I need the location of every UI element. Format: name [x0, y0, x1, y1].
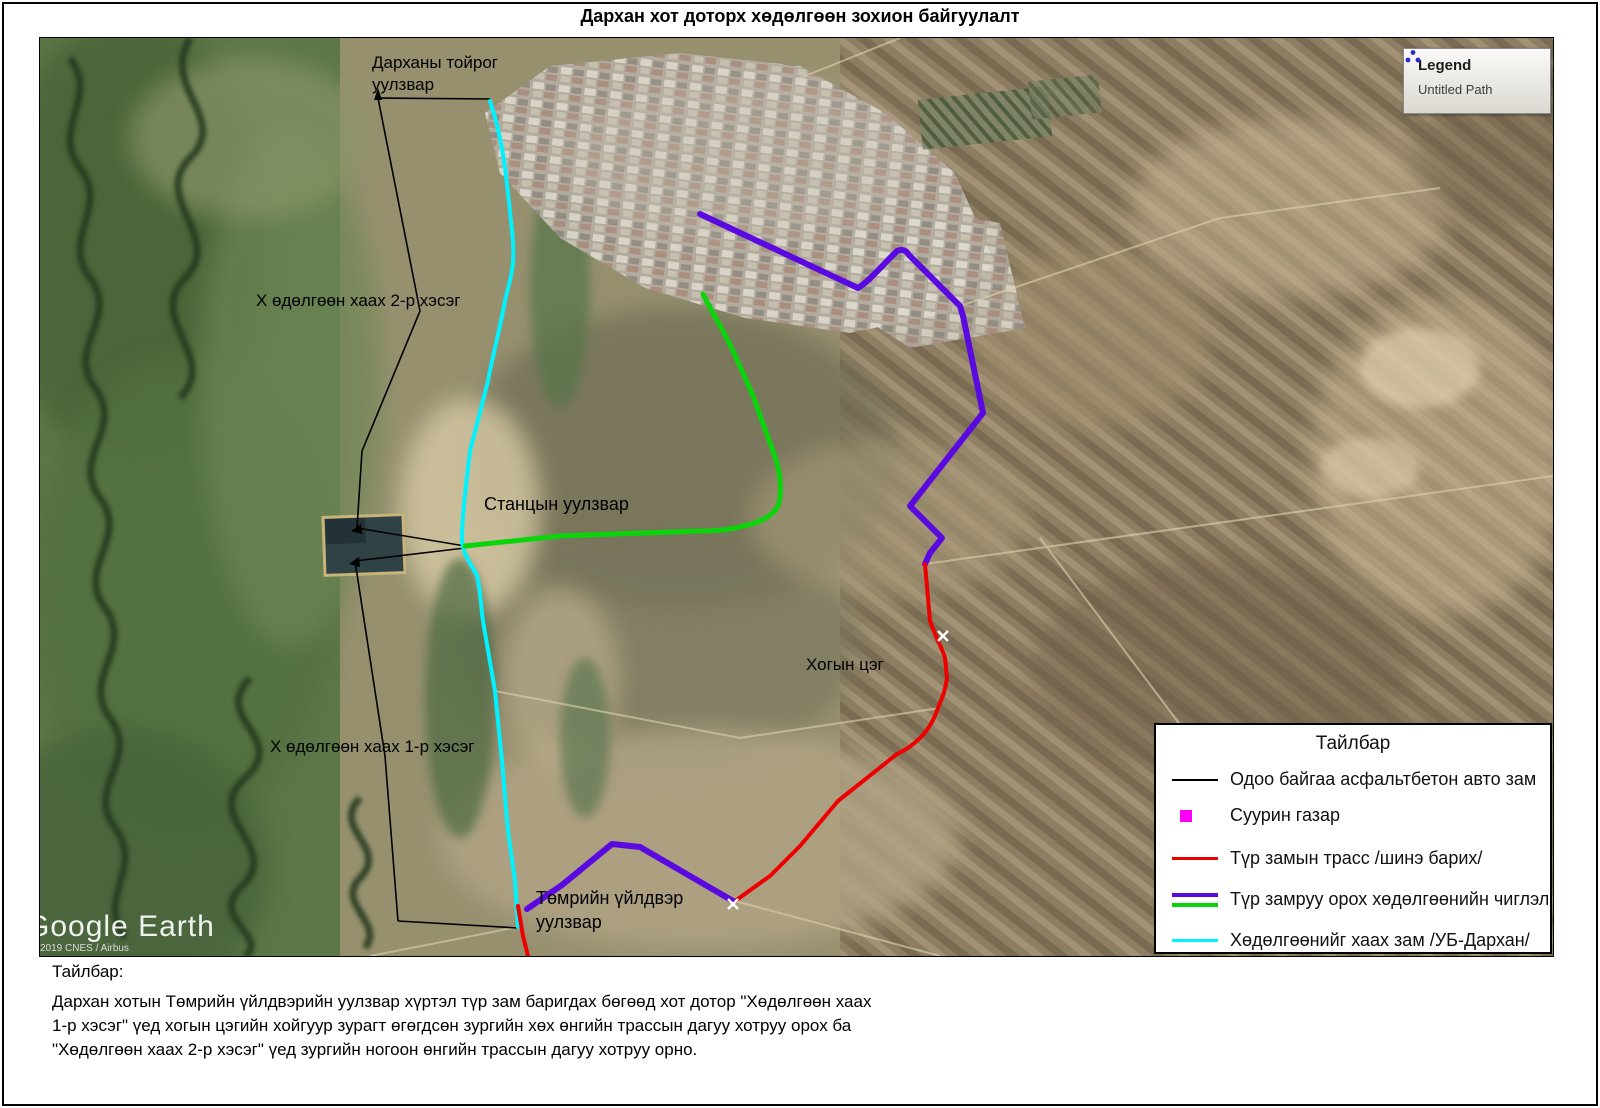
ge-legend-row: Untitled Path	[1418, 82, 1550, 97]
note-body: Дархан хотын Төмрийн үйлдвэрийн уулзвар …	[52, 990, 882, 1062]
ge-legend-box: Legend Untitled Path	[1403, 48, 1551, 114]
red-line-swatch	[1172, 857, 1230, 860]
key-row-settlement: Суурин газар	[1172, 805, 1534, 826]
google-earth-watermark: Google Earth	[40, 910, 215, 943]
label-dump-site: Хогын цэг	[806, 655, 884, 674]
key-row-closure: Хөдөлгөөнийг хаах зам /УБ-Дархан/	[1172, 930, 1534, 951]
purple-green-line-swatch	[1172, 893, 1230, 907]
label-darkhan-ring-junction-2: уулзвар	[372, 75, 434, 94]
page-title: Дархан хот доторх хөдөлгөөн зохион байгу…	[0, 6, 1600, 27]
key-row-existing-road: Одоо байгаа асфальтбетон авто зам	[1172, 769, 1534, 790]
map-key-title: Тайлбар	[1172, 733, 1534, 755]
map-key: Тайлбар Одоо байгаа асфальтбетон авто за…	[1154, 723, 1552, 954]
cyan-line-swatch	[1172, 939, 1230, 942]
black-line-swatch	[1172, 779, 1230, 781]
page: Дархан хот доторх хөдөлгөөн зохион байгу…	[0, 0, 1600, 1108]
key-row-temporary-road: Түр замын трасс /шинэ барих/	[1172, 848, 1534, 869]
label-station-junction: Станцын уулзвар	[484, 494, 629, 514]
label-closure-section-2: Х өдөлгөөн хаах 2-р хэсэг	[256, 291, 461, 310]
label-iron-factory-junction: Төмрийн үйлдвэр	[536, 888, 683, 908]
label-darkhan-ring-junction: Дарханы тойрог	[372, 53, 498, 72]
ge-legend-item-label: Untitled Path	[1418, 82, 1492, 97]
label-iron-factory-junction-2: уулзвар	[536, 912, 602, 932]
satellite-map: Дарханы тойрог уулзвар Х өдөлгөөн хаах 2…	[39, 37, 1554, 957]
label-closure-section-1: Х өдөлгөөн хаах 1-р хэсэг	[270, 737, 475, 756]
note-heading: Тайлбар:	[52, 962, 123, 982]
untitled-path-icon	[1404, 49, 1422, 64]
key-row-direction: Түр замруу орох хөдөлгөөнийн чиглэл	[1172, 889, 1534, 910]
magenta-square-swatch	[1172, 810, 1230, 822]
imagery-copyright: 2019 CNES / Airbus	[40, 943, 129, 954]
ge-legend-title: Legend	[1418, 57, 1550, 74]
